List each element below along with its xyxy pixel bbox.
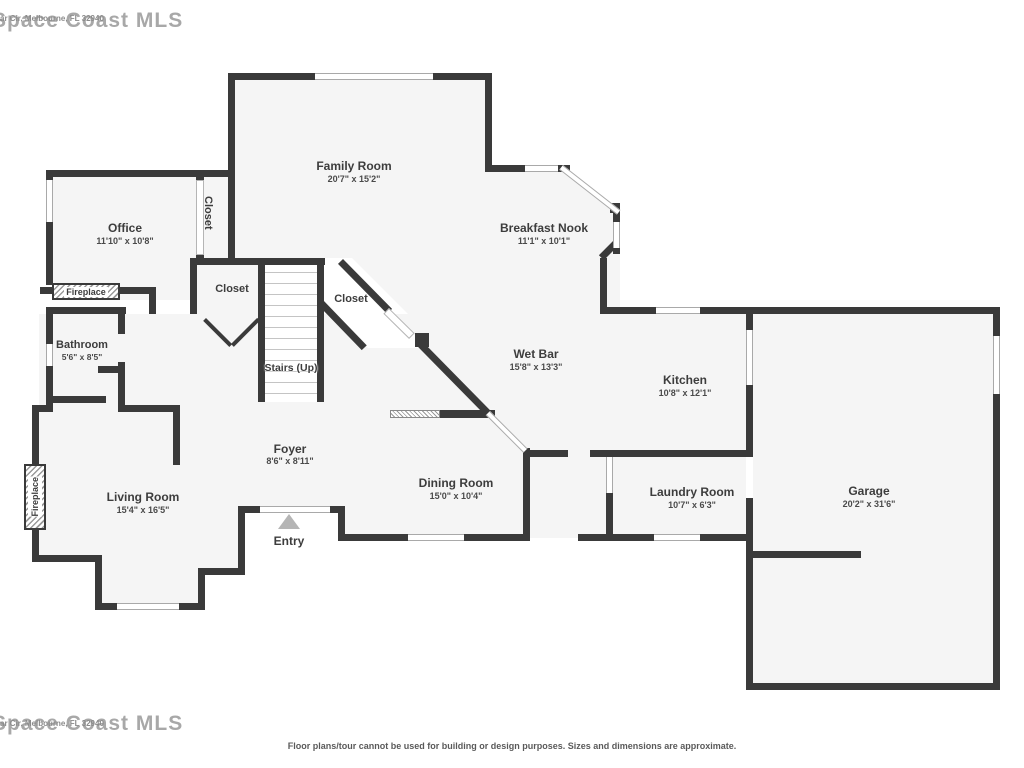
wall-segment — [228, 73, 315, 80]
room-dims-wet-bar: 15'8" x 13'3" — [510, 362, 563, 372]
wall-segment — [46, 307, 126, 314]
room-dims-breakfast-nook: 11'1" x 10'1" — [518, 236, 570, 246]
wall-segment — [600, 307, 656, 314]
stairs-label: Stairs (Up) — [264, 362, 317, 374]
window — [654, 534, 700, 541]
room-label-office: Office — [108, 221, 142, 235]
wall-segment — [196, 170, 204, 180]
room-dims-dining-room: 15'0" x 10'4" — [430, 491, 483, 501]
window — [260, 506, 330, 513]
room-dims-kitchen: 10'8" x 12'1" — [659, 388, 712, 398]
wall-segment — [338, 534, 408, 541]
wall-segment — [46, 170, 53, 180]
fireplace-label: Fireplace — [64, 287, 108, 297]
closet-label: Closet — [334, 293, 368, 305]
wall-segment — [228, 73, 235, 265]
wall-segment — [32, 555, 102, 562]
wall-segment — [173, 405, 180, 465]
room-label-laundry-room: Laundry Room — [650, 485, 735, 499]
wall-segment — [46, 396, 106, 403]
wall-segment — [485, 165, 525, 172]
door-opening — [390, 410, 440, 418]
wall-segment — [600, 258, 607, 314]
window — [656, 307, 700, 314]
closet-label: Closet — [202, 196, 214, 230]
window — [746, 330, 753, 385]
wall-segment — [118, 405, 180, 412]
wall-segment — [746, 307, 1000, 314]
stairs-treads — [265, 262, 317, 402]
wall-segment — [258, 258, 265, 402]
wall-segment — [485, 73, 492, 172]
watermark-address-text: ar Cir, Melbourne, FL 32940 — [0, 719, 104, 728]
wall-segment — [590, 450, 753, 457]
room-label-breakfast-nook: Breakfast Nook — [500, 221, 588, 235]
wall-segment — [46, 170, 196, 177]
room-label-dining-room: Dining Room — [419, 476, 494, 490]
wall-segment — [46, 366, 53, 412]
fireplace-box: Fireplace — [24, 464, 46, 530]
room-dims-living-room: 15'4" x 16'5" — [117, 505, 170, 515]
room-label-foyer: Foyer — [274, 442, 307, 456]
fireplace-label: Fireplace — [28, 477, 42, 517]
wall-segment — [338, 506, 345, 541]
window — [525, 165, 558, 172]
window — [117, 603, 179, 610]
entry-arrow-icon — [278, 514, 300, 529]
wall-segment — [746, 683, 1000, 690]
room-dims-family-room: 20'7" x 15'2" — [328, 174, 381, 184]
floor-area — [530, 314, 746, 450]
wall-segment — [190, 258, 197, 314]
window — [315, 73, 433, 80]
wall-segment — [98, 366, 125, 373]
room-dims-laundry-room: 10'7" x 6'3" — [668, 500, 716, 510]
room-label-bathroom: Bathroom — [56, 339, 108, 351]
window — [46, 180, 53, 222]
wall-segment — [40, 287, 52, 294]
wall-segment — [993, 314, 1000, 336]
room-label-garage: Garage — [848, 484, 889, 498]
window — [613, 222, 620, 248]
exterior-patch — [30, 562, 96, 610]
room-dims-office: 11'10" x 10'8" — [96, 236, 153, 246]
watermark-address-text: ar Cir, Melbourne, FL 32940 — [0, 14, 104, 23]
wall-segment — [700, 534, 753, 541]
disclaimer-text: Floor plans/tour cannot be used for buil… — [0, 741, 1024, 751]
room-label-wet-bar: Wet Bar — [513, 347, 558, 361]
window — [408, 534, 464, 541]
room-dims-bathroom: 5'6" x 8'5" — [62, 352, 102, 362]
window — [606, 457, 613, 493]
room-label-family-room: Family Room — [316, 159, 391, 173]
wall-segment — [179, 603, 205, 610]
floor-plan: Fireplace Fireplace Family Room 20'7" x … — [0, 0, 1024, 768]
room-dims-garage: 20'2" x 31'6" — [843, 499, 896, 509]
fireplace-box: Fireplace — [52, 283, 120, 300]
room-dims-foyer: 8'6" x 8'11" — [266, 456, 313, 466]
wall-segment — [578, 534, 614, 541]
wall-segment — [95, 555, 102, 610]
wall-segment — [746, 498, 753, 690]
window — [993, 336, 1000, 394]
wall-segment — [746, 314, 753, 330]
wall-segment — [238, 506, 245, 568]
closet-label: Closet — [215, 283, 249, 295]
exterior-patch — [205, 575, 245, 610]
wall-segment — [464, 534, 530, 541]
wall-segment — [614, 534, 654, 541]
wall-segment — [746, 385, 753, 457]
wall-segment — [523, 448, 530, 541]
entry-label: Entry — [274, 534, 305, 548]
wall-segment — [993, 394, 1000, 683]
wall-segment — [149, 287, 156, 314]
wall-segment — [198, 568, 245, 575]
wall-segment — [433, 73, 492, 80]
floor-area — [530, 450, 612, 538]
window — [46, 344, 53, 366]
room-label-kitchen: Kitchen — [663, 373, 707, 387]
wall-segment — [46, 222, 53, 285]
wall-segment — [118, 314, 125, 334]
wall-segment — [317, 258, 324, 402]
wall-segment — [753, 551, 861, 558]
room-label-living-room: Living Room — [107, 490, 180, 504]
